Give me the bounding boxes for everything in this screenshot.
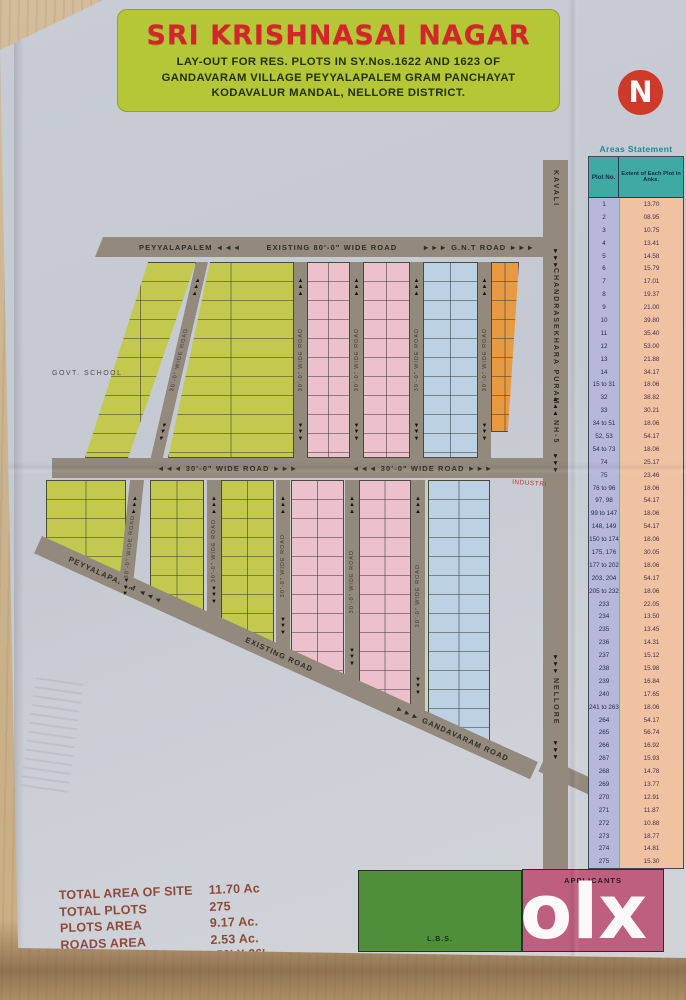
areas-row: 26556.74 [589,727,683,740]
plot-no-cell: 32 [589,391,620,404]
stats-value: 9.17 Ac. [210,915,259,931]
extent-cell: 18.06 [620,585,683,598]
up-arrows-icon: ▲▲▲ [412,278,421,297]
plot-no-cell: 4 [589,237,620,250]
extent-cell: 54.17 [620,430,683,443]
areas-row: 23614.31 [589,636,683,649]
plot-no-cell: 74 [589,456,620,469]
extent-cell: 10.75 [620,224,683,237]
plot-block-blue [423,262,478,458]
extent-cell: 15.79 [620,262,683,275]
areas-row: 921.00 [589,301,683,314]
road-label-nh5: NH-5 [552,420,559,444]
areas-row: 97, 9854.17 [589,494,683,507]
col-header-extent: Extent of Each Plot in Anks. [619,157,683,197]
plot-no-cell: 265 [589,727,620,740]
extent-cell: 15.98 [620,662,683,675]
areas-row: 310.75 [589,224,683,237]
road-label-peyyalapalem-top: PEYYALAPALEM ◄◄◄ [139,243,241,252]
extent-cell: 18.06 [620,507,683,520]
plot-no-cell: 10 [589,314,620,327]
areas-row: 27012.91 [589,791,683,804]
plot-no-cell: 6 [589,262,620,275]
lbs-block: L.B.S. [358,870,522,952]
plot-no-cell: 9 [589,301,620,314]
extent-cell: 13.45 [620,623,683,636]
plot-no-cell: 273 [589,830,620,843]
areas-row: 203, 20454.17 [589,572,683,585]
plot-no-cell: 268 [589,765,620,778]
lbs-label: L.B.S. [359,936,521,943]
areas-row: 26454.17 [589,714,683,727]
extent-cell: 38.82 [620,391,683,404]
plot-no-cell: 11 [589,327,620,340]
extent-cell: 13.41 [620,237,683,250]
road-internal-30ft: ▲▲▲30'-0" WIDE ROAD▼▼▼ [345,480,359,683]
areas-row: 150 to 17418.06 [589,533,683,546]
plot-no-cell: 7 [589,275,620,288]
up-arrows-icon: ▲▲▲ [414,496,423,515]
plot-no-cell: 241 to 263 [589,701,620,714]
up-arrows-icon: ▲▲▲ [210,496,219,515]
extent-cell: 17.65 [620,688,683,701]
col-header-plot-no: Plot No. [589,157,619,197]
plot-no-cell: 235 [589,623,620,636]
areas-row: 26616.92 [589,739,683,752]
down-arrows-icon: ▼▼▼ [551,453,560,474]
plot-no-cell: 234 [589,611,620,624]
plot-no-cell: 266 [589,739,620,752]
areas-row: 175, 17630.05 [589,546,683,559]
extent-cell: 25.17 [620,456,683,469]
up-arrows-icon: ▲▲▲ [551,396,560,417]
areas-statement-title: Areas Statement [588,144,684,154]
plot-block-yellow [168,262,294,458]
areas-row: 27210.88 [589,817,683,830]
road-internal-30ft: ▲▲▲30'-0" WIDE ROAD▼▼▼ [411,480,425,712]
road-existing-80ft: PEYYALAPALEM ◄◄◄ EXISTING 80'-0" WIDE RO… [95,237,547,257]
road-label-30ft-right: ◄◄◄ 30'-0" WIDE ROAD ►►► [352,464,493,473]
extent-cell: 53.00 [620,340,683,353]
areas-row: 26814.78 [589,765,683,778]
areas-row: 3238.82 [589,391,683,404]
extent-cell: 54.17 [620,714,683,727]
extent-cell: 21.00 [620,301,683,314]
paper-edge-shadow [14,40,24,950]
olx-watermark: olx [520,874,647,950]
extent-cell: 54.17 [620,520,683,533]
extent-cell: 14.58 [620,250,683,263]
areas-row: 113.70 [589,198,683,211]
extent-cell: 16.92 [620,739,683,752]
down-arrows-icon: ▼▼▼ [210,586,219,605]
areas-row: 1253.00 [589,340,683,353]
areas-row: 1135.40 [589,327,683,340]
road-label-30ft-internal: 30'-0" WIDE ROAD [349,550,355,613]
down-arrows-icon: ▼▼▼ [551,654,560,675]
plot-no-cell: 76 to 96 [589,482,620,495]
plot-no-cell: 14 [589,366,620,379]
extent-cell: 15.93 [620,752,683,765]
plot-no-cell: 150 to 174 [589,533,620,546]
road-label-nellore: NELLORE [552,678,559,725]
plot-no-cell: 54 to 73 [589,443,620,456]
plot-no-cell: 267 [589,752,620,765]
extent-cell: 18.06 [620,533,683,546]
areas-row: 514.58 [589,250,683,263]
road-label-30ft-internal: 30'-0" WIDE ROAD [482,328,488,391]
extent-cell: 22.05 [620,598,683,611]
areas-row: 241 to 26318.06 [589,701,683,714]
road-label-30ft-internal: 30'-0" WIDE ROAD [354,328,360,391]
plot-no-cell: 15 to 31 [589,378,620,391]
areas-row: 819.37 [589,288,683,301]
plot-no-cell: 52, 53 [589,430,620,443]
areas-row: 717.01 [589,275,683,288]
road-internal-30ft: ▲▲▲30'-0" WIDE ROAD▼▼▼ [350,262,363,458]
areas-row: 23513.45 [589,623,683,636]
extent-cell: 18.06 [620,482,683,495]
plot-block-pink [307,262,350,458]
plot-block-pink [359,480,411,712]
plot-no-cell: 238 [589,662,620,675]
areas-row: 54 to 7318.06 [589,443,683,456]
extent-cell: 19.37 [620,288,683,301]
areas-row: 27111.87 [589,804,683,817]
extent-cell: 18.77 [620,830,683,843]
up-arrows-icon: ▲▲▲ [480,278,489,297]
areas-row: 23815.98 [589,662,683,675]
road-internal-30ft: ▲▲▲30'-0" WIDE ROAD▼▼▼ [478,262,491,458]
areas-table-header: Plot No. Extent of Each Plot in Anks. [589,157,683,198]
plot-no-cell: 34 to 51 [589,417,620,430]
extent-cell: 13.50 [620,611,683,624]
areas-row: 3330.21 [589,404,683,417]
extent-cell: 14.78 [620,765,683,778]
areas-row: 99 to 14718.06 [589,507,683,520]
plot-block-pink [363,262,410,458]
plot-no-cell: 12 [589,340,620,353]
plot-no-cell: 33 [589,404,620,417]
plot-no-cell: 239 [589,675,620,688]
areas-row: 27414.81 [589,843,683,856]
plot-no-cell: 5 [589,250,620,263]
up-arrows-icon: ▲▲▲ [189,278,202,297]
areas-row: 27318.77 [589,830,683,843]
areas-row: 24017.65 [589,688,683,701]
extent-cell: 30.21 [620,404,683,417]
areas-row: 23322.05 [589,598,683,611]
road-middle-30ft: ◄◄◄ 30'-0" WIDE ROAD ►►► ◄◄◄ 30'-0" WIDE… [52,458,549,478]
road-label-30ft-internal: 30'-0" WIDE ROAD [414,328,420,391]
plot-no-cell: 148, 149 [589,520,620,533]
areas-row: 26715.93 [589,752,683,765]
areas-row: 26913.77 [589,778,683,791]
plot-no-cell: 175, 176 [589,546,620,559]
road-label-30ft-internal: 30'-0" WIDE ROAD [298,328,304,391]
road-label-existing-80ft: EXISTING 80'-0" WIDE ROAD [266,243,397,252]
areas-row: 1039.80 [589,314,683,327]
areas-row: 23916.84 [589,675,683,688]
plot-no-cell: 270 [589,791,620,804]
road-internal-30ft: ▲▲▲30'-0" WIDE ROAD▼▼▼ [207,480,221,621]
down-arrows-icon: ▼▼▼ [296,423,305,442]
areas-statement: Areas Statement Plot No. Extent of Each … [588,144,684,869]
areas-row: 615.79 [589,262,683,275]
areas-row: 15 to 3118.06 [589,378,683,391]
road-label-kavali: KAVALI [552,170,559,207]
extent-cell: 39.80 [620,314,683,327]
up-arrows-icon: ▲▲▲ [279,496,288,515]
areas-row: 148, 14954.17 [589,520,683,533]
plot-no-cell: 269 [589,778,620,791]
down-arrows-icon: ▼▼▼ [551,740,560,761]
areas-row: 76 to 9618.06 [589,482,683,495]
stats-value: 11.70 Ac [208,881,260,897]
areas-row: 205 to 23218.06 [589,585,683,598]
up-arrows-icon: ▲▲▲ [129,496,140,515]
areas-row: 23413.50 [589,611,683,624]
plot-no-cell: 236 [589,636,620,649]
down-arrows-icon: ▼▼▼ [412,423,421,442]
extent-cell: 54.17 [620,572,683,585]
plot-block-pink [291,480,344,682]
areas-row: 1321.88 [589,353,683,366]
up-arrows-icon: ▲▲▲ [296,278,305,297]
down-arrows-icon: ▼▼▼ [348,648,357,667]
plot-no-cell: 97, 98 [589,494,620,507]
up-arrows-icon: ▲▲▲ [348,496,357,515]
extent-cell: 12.91 [620,791,683,804]
road-label-30ft-internal: 30'-0" WIDE ROAD [124,515,137,578]
areas-table-body: 113.70208.95310.75413.41514.58615.79717.… [589,198,683,868]
plot-no-cell: 3 [589,224,620,237]
extent-cell: 23.46 [620,469,683,482]
down-arrows-icon: ▼▼▼ [551,248,560,269]
stats-rows: TOTAL AREA OF SITE11.70 AcTOTAL PLOTS275… [59,877,361,953]
areas-row: 34 to 5118.06 [589,417,683,430]
extent-cell: 54.17 [620,494,683,507]
road-label-gnt-road: ►►► G.N.T ROAD ►►► [422,243,535,252]
extent-cell: 18.06 [620,443,683,456]
extent-cell: 18.06 [620,417,683,430]
extent-cell: 13.77 [620,778,683,791]
down-arrows-icon: ▼▼▼ [414,677,423,696]
plot-no-cell: 1 [589,198,620,211]
photo-scene: SRI KRISHNASAI NAGAR LAY-OUT FOR RES. PL… [0,0,686,1000]
extent-cell: 11.87 [620,804,683,817]
areas-table: Plot No. Extent of Each Plot in Anks. 11… [588,156,684,869]
extent-cell: 18.06 [620,701,683,714]
road-internal-30ft: ▲▲▲30'-0" WIDE ROAD▼▼▼ [410,262,423,458]
extent-cell: 15.12 [620,649,683,662]
down-arrows-icon: ▼▼▼ [352,423,361,442]
extent-cell: 16.84 [620,675,683,688]
extent-cell: 18.06 [620,559,683,572]
extent-cell: 18.06 [620,378,683,391]
road-label-30ft-left: ◄◄◄ 30'-0" WIDE ROAD ►►► [157,464,298,473]
plot-block-orange [491,262,519,432]
road-label-30ft-internal: 30'-0" WIDE ROAD [211,519,217,582]
plot-no-cell: 2 [589,211,620,224]
road-internal-30ft: ▲▲▲30'-0" WIDE ROAD▼▼▼ [294,262,307,458]
areas-row: 413.41 [589,237,683,250]
govt-school-label: GOVT. SCHOOL [52,370,123,377]
down-arrows-icon: ▼▼▼ [480,423,489,442]
extent-cell: 35.40 [620,327,683,340]
extent-cell: 13.70 [620,198,683,211]
plot-no-cell: 177 to 202 [589,559,620,572]
extent-cell: 34.17 [620,366,683,379]
plot-no-cell: 274 [589,843,620,856]
stats-value: 2.53 Ac. [210,931,259,947]
plot-no-cell: 271 [589,804,620,817]
extent-cell: 10.88 [620,817,683,830]
up-arrows-icon: ▲▲▲ [352,278,361,297]
plot-no-cell: 99 to 147 [589,507,620,520]
plot-no-cell: 8 [589,288,620,301]
plot-no-cell: 237 [589,649,620,662]
down-arrows-icon: ▼▼▼ [279,617,288,636]
plot-no-cell: 240 [589,688,620,701]
plot-no-cell: 203, 204 [589,572,620,585]
down-arrows-icon: ▼▼▼ [156,423,169,442]
plot-no-cell: 205 to 232 [589,585,620,598]
areas-row: 7523.46 [589,469,683,482]
stats-value: 275 [209,899,231,914]
extent-cell: 21.88 [620,353,683,366]
plot-no-cell: 264 [589,714,620,727]
plot-no-cell: 75 [589,469,620,482]
areas-row: 208.95 [589,211,683,224]
road-label-30ft-internal: 30'-0" WIDE ROAD [415,564,421,627]
extent-cell: 30.05 [620,546,683,559]
road-internal-30ft: ▲▲▲30'-0" WIDE ROAD▼▼▼ [276,480,290,652]
layout-plan-paper: SRI KRISHNASAI NAGAR LAY-OUT FOR RES. PL… [0,0,686,1000]
extent-cell: 08.95 [620,211,683,224]
road-label-chandrasekhara-puram: CHANDRASEKHARA PURAM [552,268,559,405]
plot-no-cell: 272 [589,817,620,830]
extent-cell: 56.74 [620,727,683,740]
plot-no-cell: 13 [589,353,620,366]
areas-row: 23715.12 [589,649,683,662]
extent-cell: 17.01 [620,275,683,288]
areas-row: 7425.17 [589,456,683,469]
areas-row: 52, 5354.17 [589,430,683,443]
plot-block-blue [428,480,490,747]
extent-cell: 14.81 [620,843,683,856]
areas-row: 1434.17 [589,366,683,379]
industrial-label: INDUSTRI [512,479,547,488]
road-label-30ft-internal: 30'-0" WIDE ROAD [280,534,286,597]
plot-no-cell: 233 [589,598,620,611]
layout-map: PEYYALAPALEM ◄◄◄ EXISTING 80'-0" WIDE RO… [0,0,686,1000]
areas-row: 177 to 20218.06 [589,559,683,572]
extent-cell: 14.31 [620,636,683,649]
